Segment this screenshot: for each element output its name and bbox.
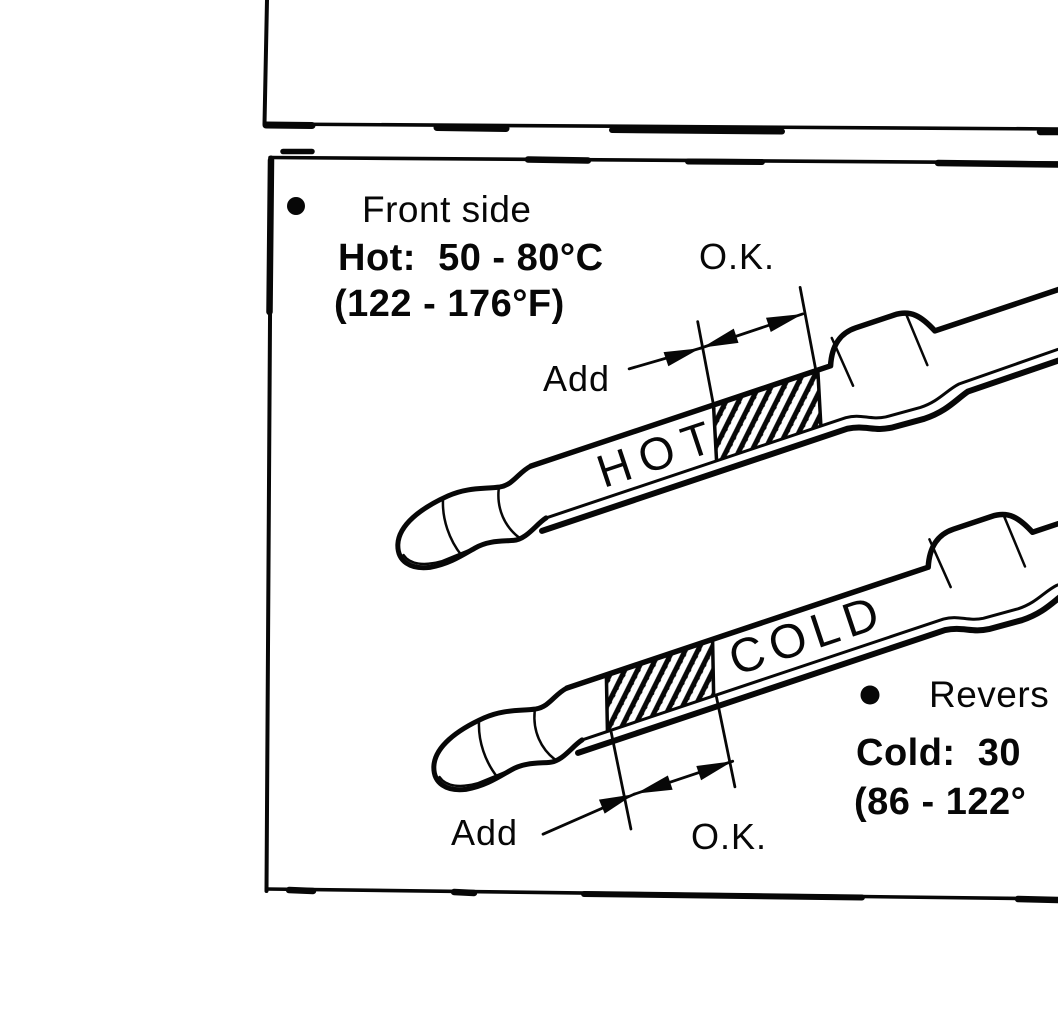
cold-add-label: Add xyxy=(451,812,518,853)
bullet-icon xyxy=(287,197,305,215)
scan-thick-segment xyxy=(270,160,272,312)
upper-box-left-border xyxy=(265,0,268,124)
add-leader-arrow xyxy=(664,341,703,367)
hot-bump-side-line xyxy=(832,336,853,387)
add-leader-arrow xyxy=(599,789,637,814)
scan-thick-segment xyxy=(528,160,588,161)
cold-bump-side-line xyxy=(929,538,950,589)
cold-stamp-text: COLD xyxy=(722,585,892,686)
dimension-arrow-left xyxy=(634,776,673,802)
cold-tip-inner-line xyxy=(474,722,498,780)
reverse-side-label: Revers xyxy=(929,674,1049,715)
scan-thick-segment xyxy=(1018,899,1058,900)
cold-extension-line-left xyxy=(600,732,642,829)
hot-extension-line-left xyxy=(686,322,725,409)
scan-thick-segment xyxy=(437,128,506,129)
dimension-arrow-right xyxy=(766,306,805,332)
reverse-side-text-block: Revers Cold: 30 (86 - 122° xyxy=(854,674,1049,823)
front-side-text-block: Front side Hot: 50 - 80°C (122 - 176°F) xyxy=(287,189,604,325)
bullet-icon xyxy=(861,686,880,705)
scan-thick-segment xyxy=(584,894,862,898)
front-side-label: Front side xyxy=(362,189,532,230)
scan-thick-segment xyxy=(454,892,474,893)
reverse-side-temp-celsius: Cold: 30 xyxy=(856,732,1021,774)
dipstick-oil-level-diagram: Front side Hot: 50 - 80°C (122 - 176°F) … xyxy=(0,0,1058,1030)
hot-tip-inner-line xyxy=(438,500,462,558)
hot-ok-label: O.K. xyxy=(699,236,775,277)
front-side-temp-fahrenheit: (122 - 176°F) xyxy=(334,283,565,325)
hot-add-label: Add xyxy=(543,358,610,399)
cold-ok-label: O.K. xyxy=(691,816,767,857)
cold-tip-outline xyxy=(422,688,588,799)
upper-partial-box xyxy=(265,0,1058,132)
front-side-temp-celsius: Hot: 50 - 80°C xyxy=(338,237,604,279)
scan-thick-segment xyxy=(266,125,312,126)
hot-extension-line-right xyxy=(789,287,828,374)
scan-thick-segment xyxy=(612,130,782,132)
dimension-arrow-left xyxy=(700,329,739,355)
reverse-side-temp-fahrenheit: (86 - 122° xyxy=(854,781,1026,823)
scan-thick-segment xyxy=(688,162,762,163)
scanned-manual-figure: Front side Hot: 50 - 80°C (122 - 176°F) … xyxy=(0,0,1058,1030)
hot-neck-inner-line xyxy=(494,488,519,540)
scan-thick-segment xyxy=(289,890,313,891)
hot-tip-outline xyxy=(386,466,552,577)
hot-add-leader-line xyxy=(629,345,700,371)
scan-thick-segment xyxy=(938,163,1058,165)
cold-neck-inner-line xyxy=(530,710,555,762)
